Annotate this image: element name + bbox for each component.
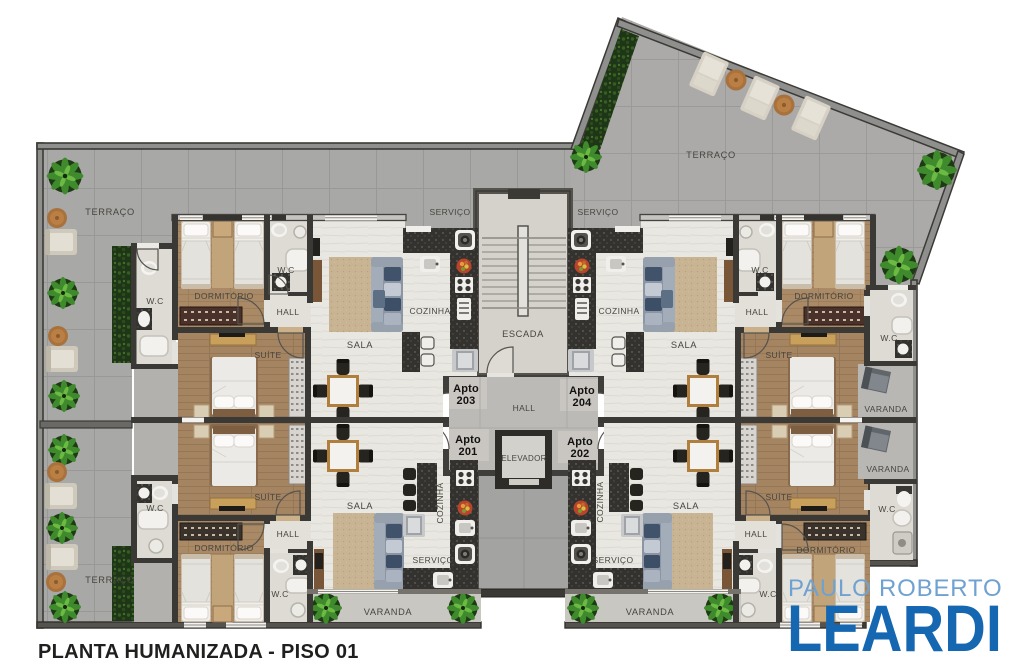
svg-text:W.C: W.C	[146, 296, 163, 306]
svg-text:TERRAÇO: TERRAÇO	[85, 575, 135, 585]
svg-text:VARANDA: VARANDA	[626, 607, 675, 617]
svg-text:HALL: HALL	[277, 529, 300, 539]
svg-text:SALA: SALA	[347, 340, 373, 350]
svg-text:SUÍTE: SUÍTE	[254, 350, 281, 360]
svg-text:SALA: SALA	[671, 340, 697, 350]
svg-text:W.C: W.C	[146, 503, 163, 513]
svg-text:PLANTA HUMANIZADA - PISO 01: PLANTA HUMANIZADA - PISO 01	[38, 641, 359, 663]
svg-text:SERVIÇO: SERVIÇO	[578, 207, 619, 217]
svg-text:SERVIÇO: SERVIÇO	[430, 207, 471, 217]
svg-text:204: 204	[573, 397, 593, 409]
svg-text:SERVIÇO: SERVIÇO	[593, 555, 634, 565]
svg-text:Apto: Apto	[453, 383, 479, 395]
svg-text:Apto: Apto	[567, 436, 593, 448]
svg-text:DORMITÓRIO: DORMITÓRIO	[194, 543, 253, 553]
svg-text:W.C: W.C	[759, 589, 776, 599]
svg-text:LEARDI: LEARDI	[787, 592, 1002, 665]
svg-text:ESCADA: ESCADA	[502, 329, 544, 339]
svg-text:DORMITÓRIO: DORMITÓRIO	[194, 291, 253, 301]
svg-text:COZINHA: COZINHA	[409, 306, 450, 316]
svg-text:W.C: W.C	[277, 265, 294, 275]
svg-text:VARANDA: VARANDA	[364, 607, 413, 617]
svg-text:SALA: SALA	[673, 501, 699, 511]
svg-text:Apto: Apto	[455, 434, 481, 446]
svg-text:HALL: HALL	[513, 403, 536, 413]
svg-text:HALL: HALL	[277, 307, 300, 317]
svg-text:W.C: W.C	[878, 504, 895, 514]
svg-text:W.C: W.C	[271, 589, 288, 599]
svg-text:202: 202	[571, 448, 590, 460]
svg-text:DORMITÓRIO: DORMITÓRIO	[796, 545, 855, 555]
svg-text:COZINHA: COZINHA	[435, 482, 445, 523]
svg-text:201: 201	[459, 446, 478, 458]
svg-text:SUÍTE: SUÍTE	[765, 350, 792, 360]
svg-text:TERRAÇO: TERRAÇO	[85, 207, 135, 217]
svg-text:VARANDA: VARANDA	[866, 464, 909, 474]
svg-text:TERRAÇO: TERRAÇO	[686, 150, 736, 160]
svg-text:SUÍTE: SUÍTE	[765, 492, 792, 502]
svg-text:COZINHA: COZINHA	[595, 481, 605, 522]
svg-text:COZINHA: COZINHA	[598, 306, 639, 316]
svg-text:HALL: HALL	[745, 529, 768, 539]
svg-text:W.C: W.C	[751, 265, 768, 275]
svg-text:203: 203	[457, 395, 476, 407]
svg-text:HALL: HALL	[746, 307, 769, 317]
svg-text:VARANDA: VARANDA	[864, 404, 907, 414]
svg-text:SALA: SALA	[347, 501, 373, 511]
svg-text:DORMITÓRIO: DORMITÓRIO	[794, 291, 853, 301]
svg-text:ELEVADOR: ELEVADOR	[501, 454, 546, 463]
svg-text:SUÍTE: SUÍTE	[254, 492, 281, 502]
svg-text:Apto: Apto	[569, 385, 595, 397]
svg-text:W.C: W.C	[880, 333, 897, 343]
svg-text:SERVIÇO: SERVIÇO	[413, 555, 454, 565]
